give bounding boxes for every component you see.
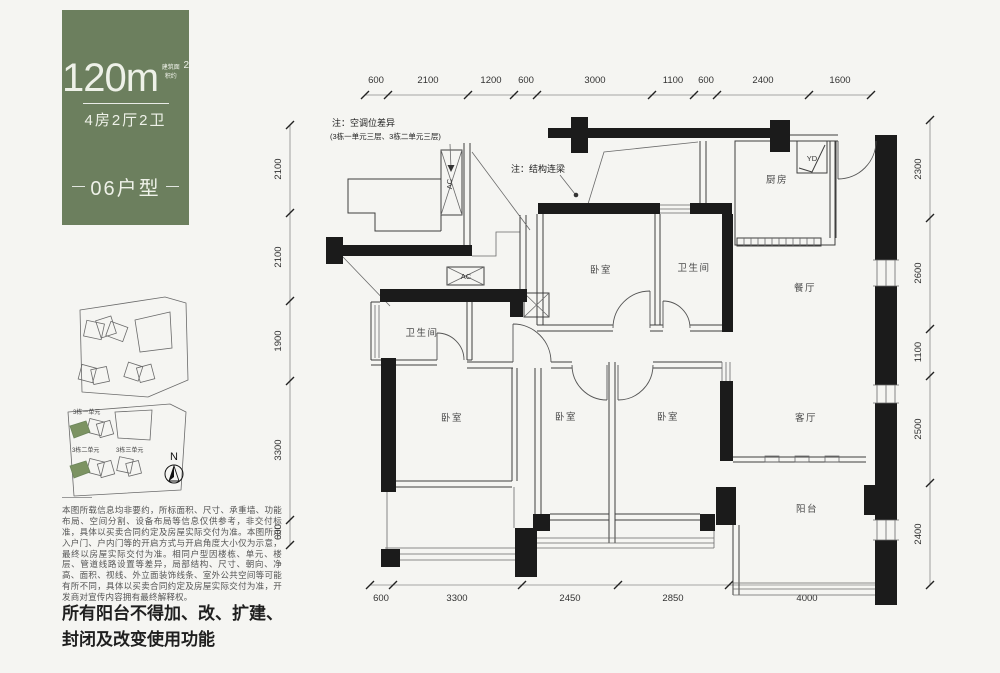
balcony-notice-line1: 所有阳台不得加、改、扩建、 xyxy=(62,604,283,623)
disclaimer-text: 本图所载信息均非要约，所标面积、尺寸、承重墙、功能布局、空间分割、设备布局等信息… xyxy=(62,505,282,603)
unit-label: 06户型 xyxy=(90,172,160,201)
dim-right-3: 1100 xyxy=(913,342,924,362)
room-label-bedroom-3: 卧室 xyxy=(657,411,679,423)
room-label-dining: 餐厅 xyxy=(794,282,816,294)
wall-layer xyxy=(326,117,897,605)
balcony-notice-line2: 封闭及改变使用功能 xyxy=(62,630,215,649)
building-label-3: 3栋三单元 xyxy=(116,446,143,454)
note-layer: 注：空调位差异 (3栋一单元三层、3栋二单元三层) 注：结构连梁 xyxy=(330,117,578,197)
dim-right-1: 2300 xyxy=(913,158,924,179)
room-label-bath-top: 卫生间 xyxy=(677,262,710,274)
room-label-bedroom-2: 卧室 xyxy=(555,411,577,423)
unit-dash-right xyxy=(166,186,179,187)
unit-info-panel: 120m 建筑面积约 2 4房2厅2卫 06户型 xyxy=(62,10,189,225)
dim-top-6: 1100 xyxy=(663,75,683,86)
dim-left-2: 2100 xyxy=(273,246,284,267)
area-superscript: 建筑面积约 2 xyxy=(159,62,189,80)
dim-right-5: 2400 xyxy=(913,523,924,544)
dim-top-9: 1600 xyxy=(829,75,850,86)
room-label-bedroom-1: 卧室 xyxy=(441,412,463,424)
north-arrow-icon: N xyxy=(165,451,183,483)
dim-top-3: 1200 xyxy=(480,75,501,86)
flue-label: YD xyxy=(807,154,818,163)
dim-bottom-2: 3300 xyxy=(446,593,467,604)
ac-note-title: 注：空调位差异 xyxy=(332,117,395,128)
dim-top-5: 3000 xyxy=(584,75,605,86)
dim-top-7: 600 xyxy=(698,75,714,86)
dim-left-5: 600 xyxy=(273,524,284,540)
disclaimer-divider xyxy=(62,497,92,498)
floorplan-page: 120m 建筑面积约 2 4房2厅2卫 06户型 xyxy=(0,0,1000,673)
building-label-2: 3栋二单元 xyxy=(72,446,99,454)
site-plan-map: 3栋一单元 3栋二单元 3栋三单元 N xyxy=(55,288,260,500)
unit-label-row: 06户型 xyxy=(62,172,189,201)
dim-bottom-1: 600 xyxy=(373,593,389,604)
dim-top-4: 600 xyxy=(518,75,534,86)
north-label: N xyxy=(170,451,178,463)
dim-right-4: 2500 xyxy=(913,418,924,439)
dim-bottom-3: 2450 xyxy=(559,593,580,604)
layout-label: 4房2厅2卫 xyxy=(62,109,189,130)
room-label-bedroom-top: 卧室 xyxy=(590,264,612,276)
unit-dash-left xyxy=(72,186,85,187)
room-label-bath-left: 卫生间 xyxy=(405,327,438,339)
area-prefix-label: 建筑面积约 xyxy=(159,62,182,80)
dim-top-8: 2400 xyxy=(752,75,773,86)
dim-left-1: 2100 xyxy=(273,158,284,179)
dim-left-4: 3300 xyxy=(273,439,284,460)
area-row: 120m 建筑面积约 2 xyxy=(62,60,189,96)
door-layer xyxy=(437,141,876,400)
dim-right-2: 2600 xyxy=(913,262,924,283)
room-label-kitchen: 厨房 xyxy=(766,174,788,186)
building-label-1: 3栋一单元 xyxy=(73,408,100,416)
dim-top-1: 600 xyxy=(368,75,384,86)
dim-bottom-4: 2850 xyxy=(662,593,683,604)
beam-note: 注：结构连梁 xyxy=(511,163,565,174)
floor-plan-canvas: 600 2100 1200 600 3000 1100 600 2400 160… xyxy=(270,40,970,640)
room-label-balcony: 阳台 xyxy=(796,503,818,515)
area-square-sup: 2 xyxy=(183,62,189,70)
room-label-living: 客厅 xyxy=(795,412,817,424)
area-value: 120m xyxy=(62,60,158,96)
dim-left-3: 1900 xyxy=(273,330,284,351)
ac-note-detail: (3栋一单元三层、3栋二单元三层) xyxy=(330,131,441,141)
ac-unit-label-vertical: AC xyxy=(445,178,454,189)
dim-top-2: 2100 xyxy=(417,75,438,86)
ac-unit-label-horizontal: AC xyxy=(461,272,472,281)
panel-divider-line xyxy=(83,103,169,104)
